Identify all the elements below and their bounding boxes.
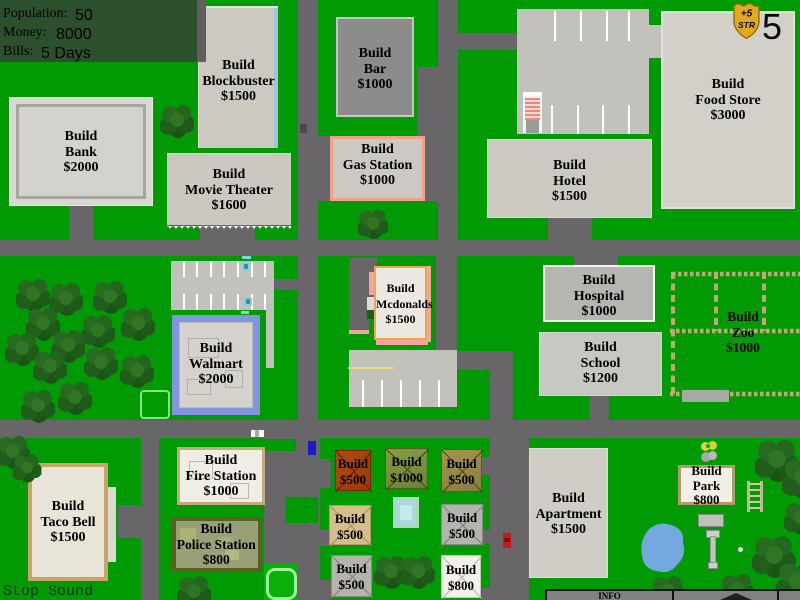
- svg-text:STR: STR: [738, 20, 756, 30]
- svg-text:+5: +5: [741, 9, 753, 20]
